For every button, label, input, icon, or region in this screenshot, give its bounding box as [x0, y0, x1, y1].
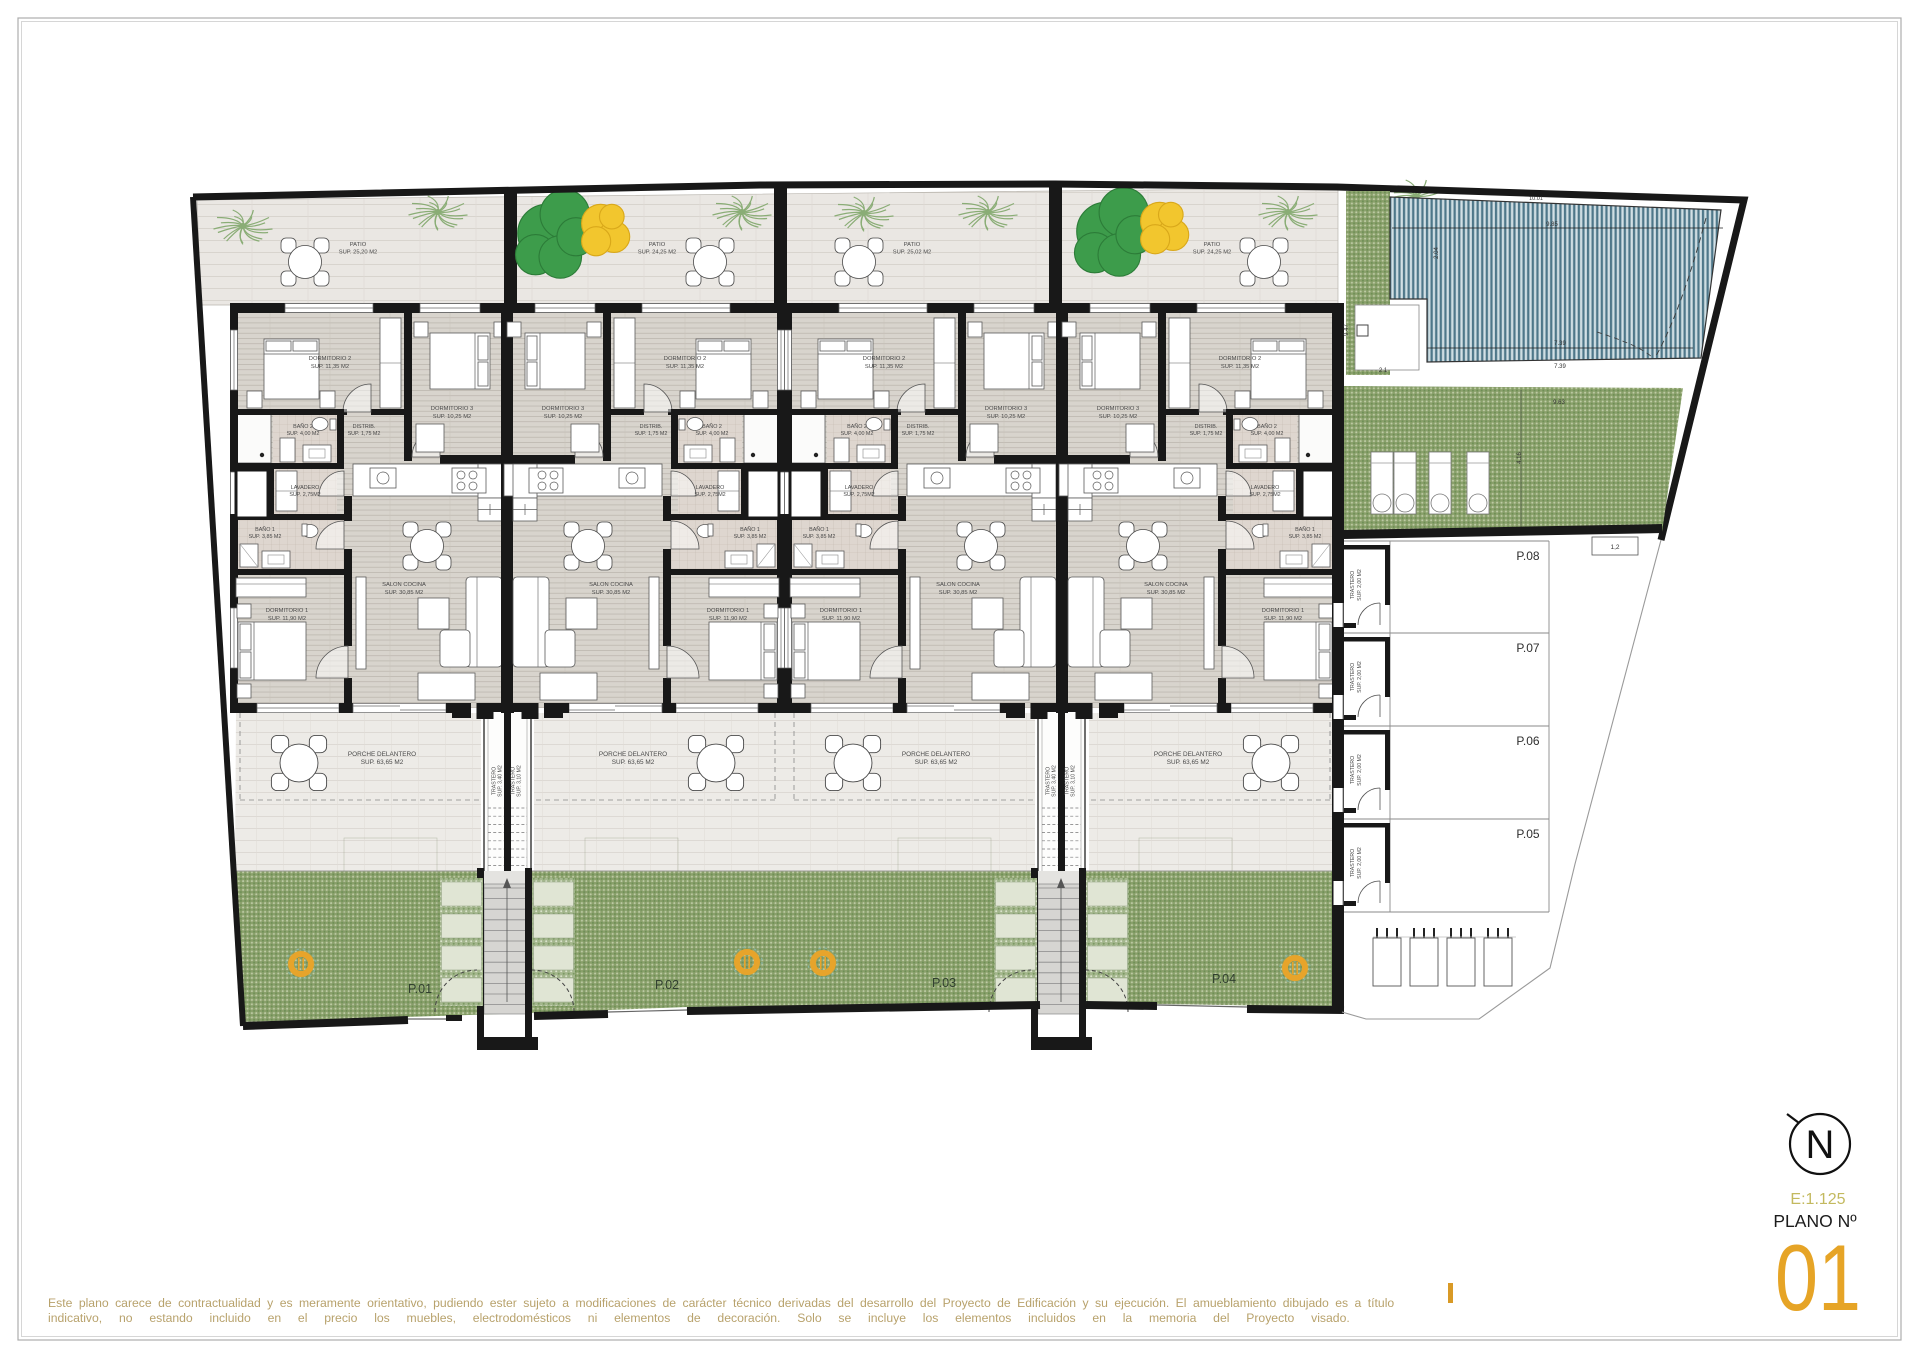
- svg-text:SUP. 63,65 M2: SUP. 63,65 M2: [361, 759, 404, 766]
- svg-text:P.01: P.01: [408, 982, 432, 996]
- svg-text:TRASTERO: TRASTERO: [1350, 756, 1356, 784]
- svg-text:SUP. 11,35 M2: SUP. 11,35 M2: [666, 364, 704, 370]
- svg-text:9.47: 9.47: [1344, 324, 1350, 336]
- svg-text:PATIO: PATIO: [350, 242, 367, 248]
- svg-text:P.02: P.02: [655, 978, 679, 992]
- svg-text:DORMITORIO 2: DORMITORIO 2: [863, 356, 905, 362]
- svg-text:SUP. 11,35 M2: SUP. 11,35 M2: [1221, 364, 1259, 370]
- svg-text:1,2: 1,2: [1610, 544, 1619, 551]
- svg-text:SUP. 11,90 M2: SUP. 11,90 M2: [268, 616, 306, 622]
- svg-text:SUP. 30,85 M2: SUP. 30,85 M2: [1147, 590, 1186, 596]
- svg-text:PORCHE DELANTERO: PORCHE DELANTERO: [902, 751, 970, 758]
- svg-text:P.03: P.03: [932, 976, 956, 990]
- svg-text:TRASTERO: TRASTERO: [1350, 849, 1356, 877]
- svg-text:SUP. 30,85 M2: SUP. 30,85 M2: [385, 590, 424, 596]
- svg-text:SUP. 2,00 M2: SUP. 2,00 M2: [1357, 661, 1363, 693]
- svg-text:SUP. 11,90 M2: SUP. 11,90 M2: [1264, 616, 1302, 622]
- svg-text:SUP. 63,65 M2: SUP. 63,65 M2: [1167, 759, 1210, 766]
- svg-text:SUP. 30,85 M2: SUP. 30,85 M2: [592, 590, 631, 596]
- svg-text:DORMITORIO 3: DORMITORIO 3: [542, 406, 584, 412]
- svg-text:SUP. 2,75M2: SUP. 2,75M2: [694, 492, 725, 498]
- svg-text:SUP. 63,65 M2: SUP. 63,65 M2: [612, 759, 655, 766]
- svg-text:SUP. 2,00 M2: SUP. 2,00 M2: [1357, 847, 1363, 879]
- svg-text:SUP. 3,85 M2: SUP. 3,85 M2: [1289, 534, 1322, 540]
- svg-text:P.04: P.04: [1212, 972, 1236, 986]
- svg-text:SUP. 2,75M2: SUP. 2,75M2: [843, 492, 874, 498]
- svg-text:Este plano carece de contractu: Este plano carece de contractualidad y e…: [48, 1296, 1394, 1310]
- svg-text:DISTRIB.: DISTRIB.: [640, 424, 663, 430]
- svg-text:SUP. 3,40 M2: SUP. 3,40 M2: [498, 765, 504, 797]
- svg-text:DORMITORIO 2: DORMITORIO 2: [309, 356, 351, 362]
- svg-text:E:1.125: E:1.125: [1790, 1191, 1845, 1208]
- svg-text:SUP. 3,40 M2: SUP. 3,40 M2: [1052, 765, 1058, 797]
- svg-text:DORMITORIO 3: DORMITORIO 3: [985, 406, 1027, 412]
- svg-text:SUP. 4,00 M2: SUP. 4,00 M2: [1251, 431, 1284, 437]
- svg-text:SUP. 10,25 M2: SUP. 10,25 M2: [1099, 414, 1138, 420]
- svg-text:SUP. 10,25 M2: SUP. 10,25 M2: [544, 414, 583, 420]
- svg-text:DORMITORIO 1: DORMITORIO 1: [1262, 608, 1304, 614]
- svg-text:PATIO: PATIO: [1204, 242, 1221, 248]
- svg-text:2.04: 2.04: [1434, 247, 1440, 259]
- svg-text:P.05: P.05: [1516, 827, 1539, 841]
- svg-text:SUP. 1,75 M2: SUP. 1,75 M2: [348, 431, 381, 437]
- svg-text:PORCHE DELANTERO: PORCHE DELANTERO: [348, 751, 416, 758]
- svg-text:DORMITORIO 1: DORMITORIO 1: [266, 608, 308, 614]
- svg-text:DORMITORIO 1: DORMITORIO 1: [707, 608, 749, 614]
- svg-text:BAÑO 1: BAÑO 1: [809, 526, 829, 533]
- svg-text:PORCHE DELANTERO: PORCHE DELANTERO: [1154, 751, 1222, 758]
- svg-text:SUP. 10,25 M2: SUP. 10,25 M2: [433, 414, 472, 420]
- svg-text:SUP. 3,85 M2: SUP. 3,85 M2: [803, 534, 836, 540]
- svg-text:SUP. 30,85 M2: SUP. 30,85 M2: [939, 590, 978, 596]
- svg-text:BAÑO 1: BAÑO 1: [1295, 526, 1315, 533]
- svg-text:SUP. 11,35 M2: SUP. 11,35 M2: [311, 364, 349, 370]
- svg-text:P.07: P.07: [1516, 641, 1539, 655]
- svg-text:SUP. 1,75 M2: SUP. 1,75 M2: [1190, 431, 1223, 437]
- svg-text:PORCHE DELANTERO: PORCHE DELANTERO: [599, 751, 667, 758]
- svg-text:SUP. 4,00 M2: SUP. 4,00 M2: [696, 431, 729, 437]
- svg-text:DORMITORIO 2: DORMITORIO 2: [1219, 356, 1261, 362]
- svg-text:DORMITORIO 2: DORMITORIO 2: [664, 356, 706, 362]
- svg-text:indicativo, no estando incluid: indicativo, no estando incluido en el pr…: [48, 1311, 1350, 1325]
- svg-text:SALON COCINA: SALON COCINA: [589, 582, 633, 588]
- svg-text:BAÑO 2: BAÑO 2: [293, 423, 313, 430]
- svg-text:SUP. 3,85 M2: SUP. 3,85 M2: [249, 534, 282, 540]
- svg-text:9.85: 9.85: [1546, 222, 1558, 228]
- svg-text:SUP. 11,90 M2: SUP. 11,90 M2: [822, 616, 860, 622]
- svg-text:7.39: 7.39: [1554, 364, 1566, 370]
- svg-text:SUP. 4,00 M2: SUP. 4,00 M2: [841, 431, 874, 437]
- svg-text:SUP. 3,10 M2: SUP. 3,10 M2: [1071, 765, 1077, 797]
- svg-text:DISTRIB.: DISTRIB.: [907, 424, 930, 430]
- svg-text:SUP. 25,02 M2: SUP. 25,02 M2: [893, 250, 932, 256]
- svg-text:SUP. 10,25 M2: SUP. 10,25 M2: [987, 414, 1026, 420]
- svg-text:SUP. 2,00 M2: SUP. 2,00 M2: [1357, 569, 1363, 601]
- svg-text:TRASTERO: TRASTERO: [1350, 663, 1356, 691]
- svg-text:SUP. 2,00 M2: SUP. 2,00 M2: [1357, 754, 1363, 786]
- svg-text:SUP. 11,90 M2: SUP. 11,90 M2: [709, 616, 747, 622]
- svg-text:DISTRIB.: DISTRIB.: [353, 424, 376, 430]
- svg-text:9.63: 9.63: [1553, 400, 1565, 406]
- svg-text:SUP. 24,25 M2: SUP. 24,25 M2: [1193, 250, 1232, 256]
- svg-text:DORMITORIO 3: DORMITORIO 3: [1097, 406, 1139, 412]
- svg-text:SUP. 4,00 M2: SUP. 4,00 M2: [287, 431, 320, 437]
- svg-text:BAÑO 1: BAÑO 1: [740, 526, 760, 533]
- svg-text:PATIO: PATIO: [649, 242, 666, 248]
- svg-text:SUP. 24,25 M2: SUP. 24,25 M2: [638, 250, 677, 256]
- svg-text:SUP. 1,75 M2: SUP. 1,75 M2: [635, 431, 668, 437]
- svg-text:SUP. 1,75 M2: SUP. 1,75 M2: [902, 431, 935, 437]
- svg-text:DORMITORIO 1: DORMITORIO 1: [820, 608, 862, 614]
- svg-text:LAVADERO: LAVADERO: [845, 485, 874, 491]
- svg-text:BAÑO 2: BAÑO 2: [702, 423, 722, 430]
- svg-text:SALON COCINA: SALON COCINA: [382, 582, 426, 588]
- svg-text:LAVADERO: LAVADERO: [696, 485, 725, 491]
- svg-text:SUP. 2,75M2: SUP. 2,75M2: [1249, 492, 1280, 498]
- svg-text:SUP. 25,20 M2: SUP. 25,20 M2: [339, 250, 378, 256]
- svg-text:TRASTERO: TRASTERO: [1350, 571, 1356, 599]
- svg-text:DISTRIB.: DISTRIB.: [1195, 424, 1218, 430]
- svg-text:BAÑO 2: BAÑO 2: [847, 423, 867, 430]
- svg-text:BAÑO 1: BAÑO 1: [255, 526, 275, 533]
- svg-text:4.16: 4.16: [1517, 452, 1523, 464]
- svg-text:SALON COCINA: SALON COCINA: [936, 582, 980, 588]
- svg-text:7.39: 7.39: [1554, 341, 1566, 347]
- svg-text:SUP. 2,75M2: SUP. 2,75M2: [289, 492, 320, 498]
- svg-text:BAÑO 2: BAÑO 2: [1257, 423, 1277, 430]
- svg-text:P.06: P.06: [1516, 734, 1539, 748]
- svg-text:P.08: P.08: [1516, 549, 1539, 563]
- svg-text:01: 01: [1775, 1225, 1861, 1330]
- svg-text:2.1: 2.1: [1379, 368, 1388, 374]
- svg-text:SUP. 63,65 M2: SUP. 63,65 M2: [915, 759, 958, 766]
- svg-text:N: N: [1806, 1123, 1835, 1167]
- svg-text:SALON COCINA: SALON COCINA: [1144, 582, 1188, 588]
- svg-text:PATIO: PATIO: [904, 242, 921, 248]
- svg-text:SUP. 11,35 M2: SUP. 11,35 M2: [865, 364, 903, 370]
- svg-text:10.01: 10.01: [1529, 196, 1543, 202]
- svg-text:SUP. 3,10 M2: SUP. 3,10 M2: [517, 765, 523, 797]
- svg-text:LAVADERO: LAVADERO: [1251, 485, 1280, 491]
- svg-text:SUP. 3,85 M2: SUP. 3,85 M2: [734, 534, 767, 540]
- svg-text:DORMITORIO 3: DORMITORIO 3: [431, 406, 473, 412]
- svg-text:LAVADERO: LAVADERO: [291, 485, 320, 491]
